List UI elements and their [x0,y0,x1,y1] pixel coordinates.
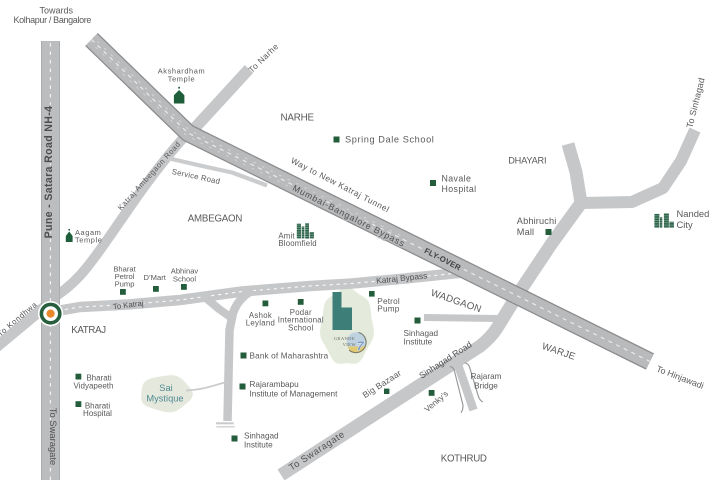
svg-text:Rajarambapu: Rajarambapu [250,380,300,389]
svg-text:Institute of Management: Institute of Management [250,390,339,399]
svg-text:School: School [288,323,313,332]
svg-text:Bank of Maharashtra: Bank of Maharashtra [250,351,329,360]
svg-text:AMBEGAON: AMBEGAON [188,213,243,224]
svg-text:Leyland: Leyland [246,319,275,328]
svg-text:Pump: Pump [377,304,399,313]
svg-text:Temple: Temple [168,74,195,83]
svg-text:To Swaragate: To Swaragate [48,408,59,465]
svg-text:Mall: Mall [517,227,534,237]
svg-text:Nanded: Nanded [677,208,710,219]
svg-text:NARHE: NARHE [281,112,315,123]
svg-text:DHAYARI: DHAYARI [508,156,546,166]
svg-text:School: School [173,275,197,284]
svg-text:VIEW: VIEW [343,342,357,347]
svg-text:KOTHRUD: KOTHRUD [441,454,487,465]
svg-text:Abhiruchi: Abhiruchi [517,216,557,226]
svg-text:Rajaram: Rajaram [471,372,502,381]
svg-text:Pump: Pump [115,280,135,289]
svg-text:KATRAJ: KATRAJ [71,325,106,336]
svg-text:Vidyapeeth: Vidyapeeth [74,381,114,390]
svg-text:Hospital: Hospital [83,409,112,418]
svg-text:City: City [677,219,693,230]
svg-text:Sinhagad: Sinhagad [244,432,279,441]
svg-text:7: 7 [356,339,364,354]
svg-text:Bloomfield: Bloomfield [278,239,316,248]
svg-text:Sai: Sai [159,383,172,393]
svg-text:Hospital: Hospital [442,184,477,194]
svg-text:D’Mart: D’Mart [144,273,167,282]
svg-text:Mystique: Mystique [146,394,183,404]
svg-text:Navale: Navale [442,174,472,184]
svg-text:Bridge: Bridge [474,382,498,391]
svg-text:Spring Dale School: Spring Dale School [345,135,434,145]
svg-text:GRANDE: GRANDE [334,336,355,341]
svg-text:Institute: Institute [244,441,273,450]
svg-text:Kolhapur / Bangalore: Kolhapur / Bangalore [14,15,92,25]
svg-text:Temple: Temple [75,235,102,244]
svg-text:Pune - Satara Road NH-4: Pune - Satara Road NH-4 [43,106,55,239]
svg-text:Institute: Institute [404,338,433,347]
